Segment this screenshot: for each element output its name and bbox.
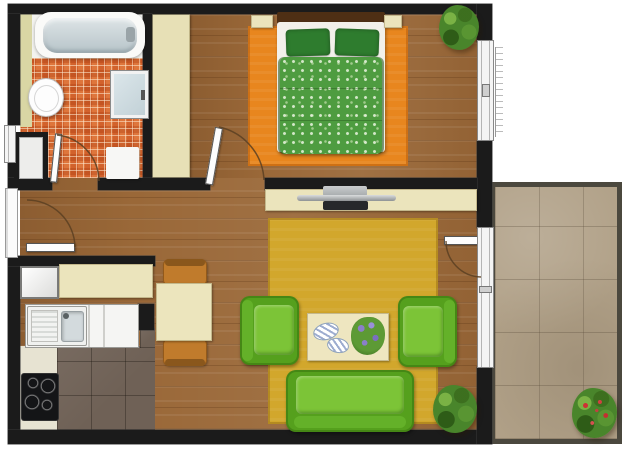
living-room-plant bbox=[433, 385, 477, 433]
bedroom-plant bbox=[439, 5, 479, 50]
pillow-right bbox=[335, 28, 380, 57]
sofa-back bbox=[294, 416, 406, 428]
bed-duvet bbox=[280, 57, 382, 154]
armchair-seat bbox=[254, 305, 294, 355]
dining-chair-bottom bbox=[163, 338, 207, 366]
bathroom-wall-lining bbox=[20, 14, 32, 127]
kitchen-tile-floor bbox=[57, 346, 155, 430]
armchair-left bbox=[240, 296, 299, 365]
tv-screen bbox=[323, 201, 368, 210]
entry-doorway bbox=[5, 188, 18, 258]
bedroom-window-sill bbox=[495, 47, 503, 137]
toilet-seat bbox=[34, 85, 59, 112]
armchair-back bbox=[242, 300, 253, 361]
armchair-right bbox=[398, 296, 457, 367]
sink-drainboard bbox=[31, 310, 58, 342]
bathtub-faucet bbox=[126, 27, 135, 42]
wall-left-lower bbox=[8, 256, 20, 430]
armchair-seat bbox=[403, 306, 443, 357]
balcony-door-frame bbox=[477, 227, 494, 368]
shower-handle bbox=[141, 90, 145, 100]
armchair-back bbox=[444, 300, 455, 363]
nightstand-right bbox=[384, 15, 402, 28]
chair-backrest bbox=[165, 259, 205, 266]
cooktop bbox=[22, 374, 58, 420]
wall-right-lower bbox=[477, 367, 492, 444]
kitchen-tile-patch bbox=[140, 328, 155, 348]
utility-shaft bbox=[14, 132, 48, 184]
balcony-door-handle bbox=[479, 286, 492, 293]
pillow-left bbox=[286, 28, 331, 57]
chair-backrest bbox=[165, 359, 205, 366]
sofa bbox=[286, 370, 414, 432]
entry-door-leaf bbox=[26, 243, 75, 252]
dining-table bbox=[156, 283, 212, 341]
balcony-flowering-plant bbox=[572, 388, 617, 438]
bedroom-wardrobe bbox=[152, 14, 190, 178]
sofa-seat bbox=[296, 376, 404, 414]
wall-left-upper bbox=[8, 14, 20, 125]
dining-chair-top bbox=[163, 259, 207, 286]
bathtub-basin bbox=[43, 18, 137, 53]
floorplan bbox=[0, 0, 625, 450]
bath-mat bbox=[106, 147, 139, 179]
bedroom-window-handle bbox=[482, 84, 490, 97]
wall-kitchen-stub bbox=[138, 304, 154, 330]
hall-small-window bbox=[4, 125, 16, 163]
sink-faucet bbox=[63, 313, 69, 319]
wall-hall-top bbox=[98, 178, 210, 190]
kitchen-upper-cabinet bbox=[59, 264, 153, 298]
wall-right-upper bbox=[477, 4, 492, 42]
wall-right-mid bbox=[477, 141, 492, 228]
nightstand-left bbox=[251, 15, 273, 28]
fridge bbox=[20, 266, 59, 299]
wall-bottom bbox=[8, 430, 492, 444]
